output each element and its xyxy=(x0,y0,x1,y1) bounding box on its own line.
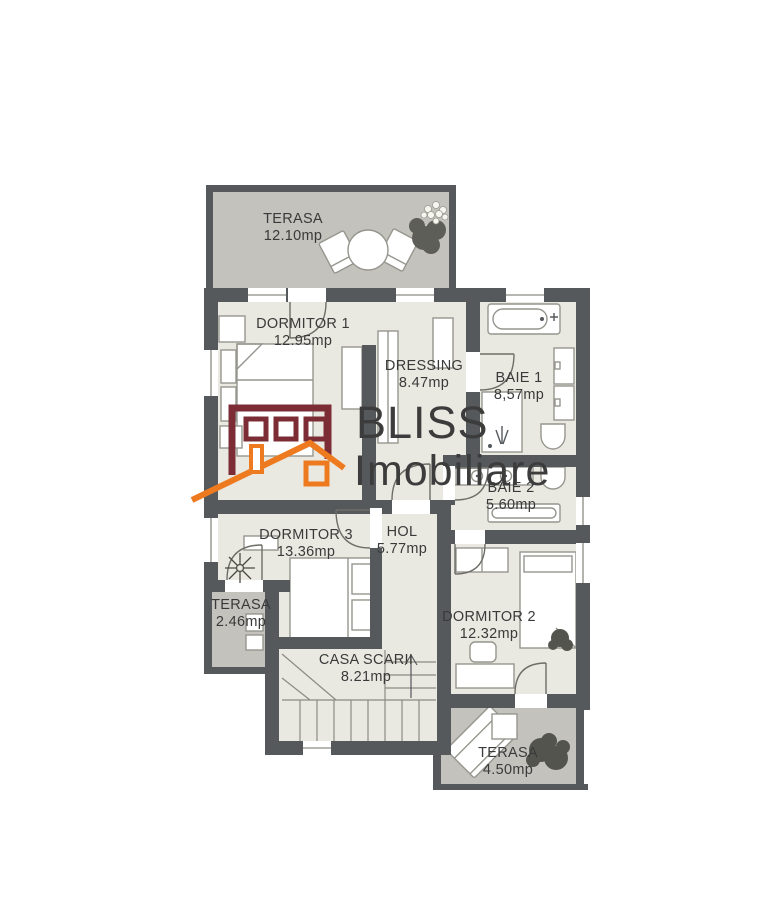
room-name: HOL xyxy=(377,524,427,541)
room-label-dressing: DRESSING 8.47mp xyxy=(385,358,463,392)
room-name: TERASA xyxy=(263,211,323,228)
window xyxy=(303,741,331,755)
window xyxy=(576,497,590,525)
window xyxy=(204,350,218,396)
room-name: TERASA xyxy=(478,745,538,762)
room-area: 12.10mp xyxy=(263,228,323,245)
room-name: TERASA xyxy=(211,597,271,614)
d1-nightstand xyxy=(221,350,236,383)
room-area: 8.47mp xyxy=(385,375,463,392)
room-area: 12.32mp xyxy=(442,626,536,643)
room-name: CASA SCARII xyxy=(319,652,413,669)
window xyxy=(248,288,286,302)
room-area: 12.95mp xyxy=(256,333,350,350)
window xyxy=(576,543,590,583)
room-label-terasa-top: TERASA 12.10mp xyxy=(263,211,323,245)
room-area: 2.46mp xyxy=(211,614,271,631)
room-label-casa-scarii: CASA SCARII 8.21mp xyxy=(319,652,413,686)
room-label-hol: HOL 5.77mp xyxy=(377,524,427,558)
room-area: 8.21mp xyxy=(319,669,413,686)
window xyxy=(204,518,218,562)
room-label-dormitor-3: DORMITOR 3 13.36mp xyxy=(259,527,353,561)
room-label-dormitor-1: DORMITOR 1 12.95mp xyxy=(256,316,350,350)
room-label-terasa-left: TERASA 2.46mp xyxy=(211,597,271,631)
watermark-brand-name: BLISS xyxy=(356,400,489,445)
room-label-dormitor-2: DORMITOR 2 12.32mp xyxy=(442,609,536,643)
b1-toilet xyxy=(541,424,565,449)
terrace-table xyxy=(348,230,388,270)
watermark-brand-subtitle: Imobiliare xyxy=(354,450,550,493)
room-area: 5.77mp xyxy=(377,541,427,558)
room-name: BAIE 1 xyxy=(494,370,544,387)
flower-icon xyxy=(225,553,255,583)
d1-wardrobe xyxy=(219,316,245,342)
room-name: DRESSING xyxy=(385,358,463,375)
d2-pillow xyxy=(524,556,572,572)
room-name: DORMITOR 3 xyxy=(259,527,353,544)
d3-pillow xyxy=(352,564,372,594)
floor-plan-page: TERASA 12.10mp DORMITOR 1 12.95mp DRESSI… xyxy=(0,0,766,900)
room-label-terasa-bottom: TERASA 4.50mp xyxy=(478,745,538,779)
room-area: 4.50mp xyxy=(478,762,538,779)
window xyxy=(506,288,544,302)
room-name: DORMITOR 1 xyxy=(256,316,350,333)
room-area: 8,57mp xyxy=(494,387,544,404)
window xyxy=(396,288,434,302)
room-area: 5.60mp xyxy=(486,497,536,514)
d3-pillow xyxy=(352,600,372,630)
room-label-baie-1: BAIE 1 8,57mp xyxy=(494,370,544,404)
d2-chair xyxy=(470,642,496,662)
room-name: DORMITOR 2 xyxy=(442,609,536,626)
room-area: 13.36mp xyxy=(259,544,353,561)
logo-chimney-icon xyxy=(251,446,262,472)
d2-desk xyxy=(456,664,514,688)
